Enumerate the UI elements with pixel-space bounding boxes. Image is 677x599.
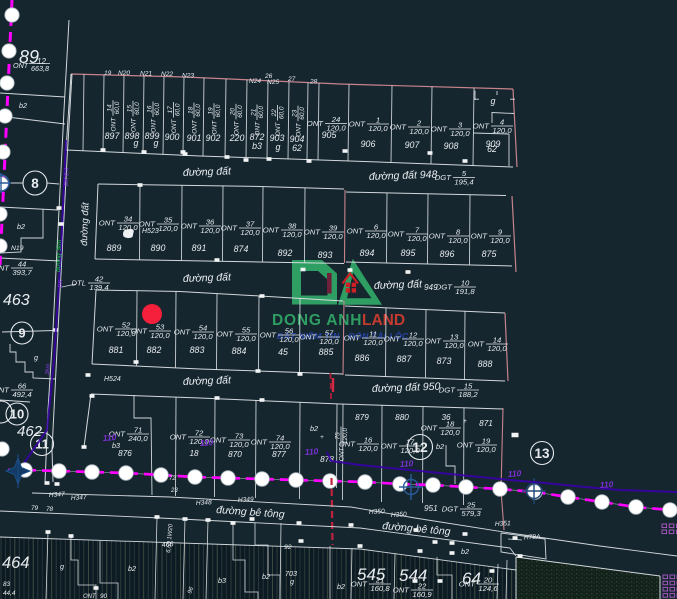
svg-text:14: 14 [493, 335, 502, 344]
svg-text:464: 464 [2, 554, 30, 572]
svg-text:ONT: ONT [307, 119, 325, 128]
svg-text:62: 62 [487, 144, 497, 154]
svg-text:ONT: ONT [304, 228, 322, 237]
svg-text:900: 900 [165, 132, 180, 142]
svg-text:ONT: ONT [217, 330, 235, 339]
svg-text:72: 72 [169, 476, 176, 482]
svg-text:188,2: 188,2 [458, 390, 478, 399]
svg-text:ONT: ONT [384, 335, 402, 344]
svg-text:110: 110 [599, 479, 613, 490]
svg-text:ONT: ONT [429, 232, 447, 241]
svg-text:g: g [60, 562, 64, 571]
svg-text:ONT: ONT [390, 123, 408, 132]
svg-text:120,0: 120,0 [368, 124, 388, 133]
svg-text:875: 875 [482, 249, 497, 259]
svg-text:28: 28 [309, 79, 318, 86]
svg-text:ONT: ONT [221, 224, 239, 233]
svg-text:39: 39 [329, 223, 338, 232]
svg-text:60,0: 60,0 [154, 102, 161, 115]
svg-text:ONT: ONT [13, 61, 29, 70]
svg-text:ONT: ONT [300, 333, 318, 342]
svg-text:120,0: 120,0 [326, 124, 346, 133]
svg-text:120,0: 120,0 [448, 236, 468, 245]
svg-text:883: 883 [190, 345, 205, 355]
svg-text:906: 906 [361, 139, 376, 149]
svg-text:b2: b2 [337, 582, 345, 591]
svg-text:H351: H351 [495, 520, 511, 528]
svg-text:191,8: 191,8 [455, 287, 475, 296]
svg-text:b2: b2 [461, 547, 469, 556]
svg-text:DGT: DGT [436, 283, 454, 292]
svg-text:ONT: ONT [471, 232, 489, 241]
svg-text:120,0: 120,0 [450, 129, 470, 138]
svg-text:893: 893 [318, 250, 333, 260]
svg-text:16: 16 [364, 435, 373, 444]
svg-text:ONT: ONT [83, 594, 97, 599]
svg-text:b2: b2 [262, 572, 270, 581]
svg-text:3: 3 [458, 120, 463, 129]
svg-text:60,0: 60,0 [237, 105, 244, 118]
svg-text:đường đất: đường đất [79, 202, 92, 246]
svg-text:H349: H349 [238, 496, 254, 504]
svg-text:44,4: 44,4 [3, 590, 16, 597]
svg-text:120,0: 120,0 [407, 234, 427, 243]
svg-text:120,0: 120,0 [366, 231, 386, 240]
svg-text:N25: N25 [267, 79, 279, 86]
svg-text:120,0: 120,0 [444, 341, 464, 350]
svg-text:23: 23 [170, 488, 178, 494]
svg-text:18: 18 [189, 449, 199, 458]
svg-text:ONT: ONT [349, 120, 367, 129]
svg-text:663,8: 663,8 [31, 64, 49, 73]
svg-text:120,0: 120,0 [363, 338, 383, 347]
svg-text:b2: b2 [17, 222, 25, 231]
svg-text:ONT: ONT [421, 424, 439, 433]
svg-text:38: 38 [288, 221, 297, 230]
svg-text:15: 15 [464, 381, 473, 390]
svg-text:34: 34 [124, 214, 133, 223]
svg-text:463: 463 [3, 292, 30, 309]
svg-text:74: 74 [276, 433, 285, 442]
svg-text:ONT: ONT [0, 264, 10, 273]
svg-text:908: 908 [444, 141, 459, 151]
svg-text:b2: b2 [436, 442, 444, 451]
svg-text:3km: 3km [45, 363, 52, 375]
svg-text:887: 887 [397, 354, 413, 364]
svg-text:885: 885 [319, 347, 334, 357]
svg-text:21: 21 [250, 108, 257, 117]
svg-text:110: 110 [507, 468, 521, 479]
svg-text:11: 11 [369, 329, 377, 338]
svg-text:9: 9 [498, 227, 503, 236]
svg-text:891: 891 [192, 243, 207, 253]
svg-text:ONT: ONT [339, 440, 357, 449]
svg-text:16: 16 [146, 105, 153, 113]
svg-text:g: g [491, 96, 496, 106]
svg-text:78: 78 [46, 506, 54, 513]
svg-text:ONT: ONT [347, 227, 365, 236]
svg-text:b3: b3 [218, 576, 226, 585]
svg-text:880: 880 [395, 413, 409, 422]
svg-text:H350: H350 [369, 508, 385, 516]
svg-text:951: 951 [424, 504, 438, 513]
svg-text:ONT: ONT [393, 586, 411, 595]
svg-text:H347: H347 [49, 491, 65, 499]
svg-text:19: 19 [482, 436, 491, 445]
svg-text:60,0: 60,0 [278, 106, 285, 119]
svg-text:37: 37 [246, 219, 255, 228]
svg-text:12: 12 [409, 330, 418, 339]
svg-text:110: 110 [102, 432, 116, 443]
svg-text:892: 892 [278, 248, 293, 258]
svg-text:H348: H348 [196, 499, 212, 507]
svg-text:120,0: 120,0 [490, 236, 510, 245]
svg-text:876: 876 [118, 449, 132, 458]
svg-text:b2: b2 [19, 101, 27, 110]
svg-text:đường đất: đường đất [183, 374, 233, 388]
svg-text:20: 20 [229, 108, 236, 117]
svg-text:890: 890 [151, 243, 166, 253]
svg-text:19: 19 [104, 70, 112, 77]
svg-text:492,4: 492,4 [12, 390, 31, 399]
svg-text:120,0: 120,0 [282, 230, 302, 239]
svg-text:DGT: DGT [442, 505, 460, 514]
svg-text:139,4: 139,4 [89, 283, 108, 292]
svg-text:160,8: 160,8 [370, 584, 390, 593]
svg-text:4: 4 [500, 117, 504, 126]
svg-text:24: 24 [331, 115, 341, 124]
svg-text:ONT: ONT [181, 222, 199, 231]
svg-text:57: 57 [325, 328, 334, 337]
svg-text:+: + [320, 434, 324, 441]
svg-text:42: 42 [95, 274, 104, 283]
svg-text:120,0: 120,0 [323, 232, 343, 241]
svg-text:ONT: ONT [351, 580, 369, 589]
svg-text:b2: b2 [310, 424, 318, 433]
svg-text:g: g [34, 353, 38, 362]
svg-text:120,0: 120,0 [229, 440, 249, 449]
svg-text:71: 71 [134, 425, 143, 434]
svg-text:20: 20 [483, 575, 493, 584]
svg-text:N22: N22 [161, 71, 173, 78]
svg-text:878: 878 [320, 455, 334, 464]
svg-text:14: 14 [106, 104, 113, 112]
svg-text:DK 0,4: DK 0,4 [64, 167, 71, 186]
svg-text:g: g [290, 577, 294, 586]
svg-text:120,0: 120,0 [487, 344, 507, 353]
svg-text:ONT: ONT [457, 441, 475, 450]
svg-text:120,0: 120,0 [158, 224, 178, 233]
svg-text:120,0: 120,0 [440, 428, 460, 437]
svg-text:5: 5 [462, 169, 467, 178]
svg-text:+: + [463, 418, 467, 425]
svg-text:N20: N20 [118, 70, 130, 77]
svg-text:ONT: ONT [473, 122, 491, 131]
svg-text:92: 92 [284, 544, 292, 551]
svg-text:9: 9 [18, 326, 25, 341]
svg-text:đường đất: đường đất [183, 271, 233, 285]
svg-text:H523: H523 [142, 228, 159, 235]
svg-text:60,0: 60,0 [174, 103, 181, 116]
svg-text:ONT: ONT [381, 442, 399, 451]
svg-text:đường đất: đường đất [374, 278, 424, 292]
svg-text:ONT: ONT [97, 325, 115, 334]
svg-text:52: 52 [122, 320, 131, 329]
svg-text:870: 870 [228, 450, 242, 459]
svg-text:240,0: 240,0 [127, 434, 148, 443]
svg-text:120,0: 120,0 [319, 337, 339, 346]
svg-text:56: 56 [285, 326, 294, 335]
svg-text:N23: N23 [182, 73, 194, 80]
svg-text:1: 1 [376, 115, 380, 124]
svg-text:120,0: 120,0 [492, 126, 512, 135]
svg-text:895: 895 [401, 248, 416, 258]
svg-text:19: 19 [207, 107, 214, 115]
svg-text:44: 44 [18, 259, 27, 268]
svg-text:DGT: DGT [435, 173, 453, 182]
svg-text:882: 882 [147, 345, 162, 355]
svg-text:đường đất 948: đường đất 948 [369, 169, 438, 183]
svg-text:12: 12 [412, 439, 428, 455]
svg-text:ONT: ONT [0, 386, 10, 395]
svg-text:897: 897 [105, 131, 121, 141]
svg-text:60,0: 60,0 [134, 102, 141, 115]
svg-text:907: 907 [405, 140, 421, 150]
svg-text:83: 83 [3, 581, 11, 588]
svg-text:ONT: ONT [174, 328, 192, 337]
svg-text:75: 75 [334, 432, 341, 440]
svg-text:đường 3km: đường 3km [55, 239, 63, 272]
svg-text:120,0: 120,0 [476, 445, 496, 454]
svg-text:6: 6 [374, 222, 379, 231]
svg-text:896: 896 [440, 249, 455, 259]
svg-text:DTL: DTL [71, 279, 86, 288]
svg-text:220: 220 [229, 133, 245, 143]
svg-text:120,0: 120,0 [200, 226, 220, 235]
svg-text:120,0: 120,0 [403, 339, 423, 348]
svg-text:72: 72 [195, 428, 204, 437]
svg-text:g: g [134, 138, 139, 148]
svg-text:ONT: ONT [344, 334, 362, 343]
svg-text:ONT: ONT [131, 327, 149, 336]
svg-text:90: 90 [100, 593, 108, 599]
svg-text:393,7: 393,7 [12, 268, 32, 277]
svg-text:18: 18 [187, 106, 194, 114]
svg-text:79: 79 [31, 505, 39, 512]
svg-text:877: 877 [272, 450, 286, 459]
svg-text:23: 23 [291, 109, 298, 118]
svg-text:60,0: 60,0 [195, 104, 202, 117]
svg-text:ONT: ONT [263, 226, 281, 235]
svg-text:13: 13 [450, 332, 459, 341]
svg-text:871: 871 [479, 419, 493, 428]
svg-text:888: 888 [478, 359, 493, 369]
svg-text:110: 110 [199, 437, 213, 448]
svg-text:8: 8 [31, 176, 39, 191]
svg-text:886: 886 [355, 353, 370, 363]
svg-text:2: 2 [416, 118, 422, 127]
svg-text:LAND: LAND [362, 312, 405, 329]
svg-text:25: 25 [466, 500, 476, 509]
svg-text:120,0: 120,0 [150, 331, 170, 340]
svg-text:22: 22 [417, 581, 427, 590]
svg-text:7: 7 [415, 225, 420, 234]
svg-text:21: 21 [375, 575, 385, 584]
svg-text:N21: N21 [140, 71, 152, 78]
svg-text:894: 894 [360, 248, 375, 258]
svg-text:ONT: ONT [131, 117, 138, 132]
svg-text:b2: b2 [128, 564, 136, 573]
svg-text:DGT: DGT [439, 386, 457, 395]
svg-text:15: 15 [126, 105, 133, 113]
svg-text:H524: H524 [104, 376, 121, 383]
svg-text:18: 18 [446, 419, 455, 428]
svg-text:881: 881 [109, 345, 124, 355]
svg-text:120,0: 120,0 [358, 444, 378, 453]
svg-text:110: 110 [399, 458, 413, 469]
svg-text:ONT: ONT [431, 125, 449, 134]
svg-text:120,0: 120,0 [240, 228, 260, 237]
svg-text:ONT: ONT [260, 331, 278, 340]
svg-text:120,0: 120,0 [193, 332, 213, 341]
svg-text:160,9: 160,9 [412, 590, 432, 599]
svg-text:đường đất 950: đường đất 950 [372, 381, 441, 395]
svg-text:N24: N24 [249, 78, 261, 85]
svg-text:ONT: ONT [111, 117, 118, 132]
svg-text:195,4: 195,4 [454, 178, 473, 187]
svg-text:17: 17 [167, 106, 174, 114]
svg-text:45: 45 [278, 347, 288, 357]
svg-text:22: 22 [271, 109, 278, 118]
svg-text:884: 884 [232, 346, 247, 356]
svg-text:8: 8 [456, 227, 461, 236]
svg-text:901: 901 [187, 133, 202, 143]
svg-text:60,0: 60,0 [215, 104, 222, 117]
svg-text:120,0: 120,0 [236, 334, 256, 343]
svg-text:874: 874 [234, 244, 249, 254]
svg-text:10: 10 [461, 278, 470, 287]
svg-text:579,3: 579,3 [461, 509, 481, 518]
svg-text:462: 462 [17, 423, 43, 440]
svg-text:đường đất: đường đất [183, 165, 233, 179]
svg-text:120,0: 120,0 [279, 335, 299, 344]
svg-text:110: 110 [304, 446, 318, 457]
svg-text:60,0: 60,0 [258, 105, 265, 118]
svg-text:53: 53 [156, 322, 165, 331]
svg-text:ONT: ONT [192, 119, 199, 134]
svg-text:879: 879 [355, 413, 369, 422]
svg-text:27: 27 [287, 76, 296, 83]
svg-text:ONT: ONT [388, 230, 406, 239]
svg-text:ONT: ONT [468, 340, 486, 349]
svg-text:N19: N19 [11, 245, 24, 252]
svg-text:62: 62 [292, 143, 302, 153]
svg-text:60,0: 60,0 [299, 107, 306, 120]
svg-text:73: 73 [235, 431, 244, 440]
svg-text:35: 35 [164, 215, 173, 224]
svg-text:ONT: ONT [425, 337, 443, 346]
svg-text:60,0: 60,0 [114, 101, 121, 114]
svg-text:873: 873 [437, 356, 452, 366]
svg-text:13: 13 [534, 446, 550, 461]
svg-text:ONT: ONT [170, 433, 188, 442]
svg-text:g: g [154, 138, 159, 148]
svg-text:124,6: 124,6 [478, 584, 498, 593]
svg-text:902: 902 [206, 133, 221, 143]
svg-text:b3: b3 [252, 141, 262, 151]
svg-text:55: 55 [242, 325, 251, 334]
svg-text:54: 54 [199, 323, 208, 332]
svg-text:H350: H350 [391, 511, 407, 519]
svg-text:889: 889 [107, 243, 122, 253]
svg-text:36: 36 [206, 217, 215, 226]
svg-text:ONT: ONT [251, 438, 269, 447]
svg-text:H347: H347 [71, 494, 87, 502]
svg-text:ONT: ONT [459, 580, 477, 589]
svg-text:ONT: ONT [339, 446, 346, 461]
svg-text:ONT: ONT [99, 219, 117, 228]
svg-text:120,0: 120,0 [409, 127, 429, 136]
svg-text:66: 66 [18, 381, 27, 390]
svg-text:g: g [276, 142, 281, 152]
